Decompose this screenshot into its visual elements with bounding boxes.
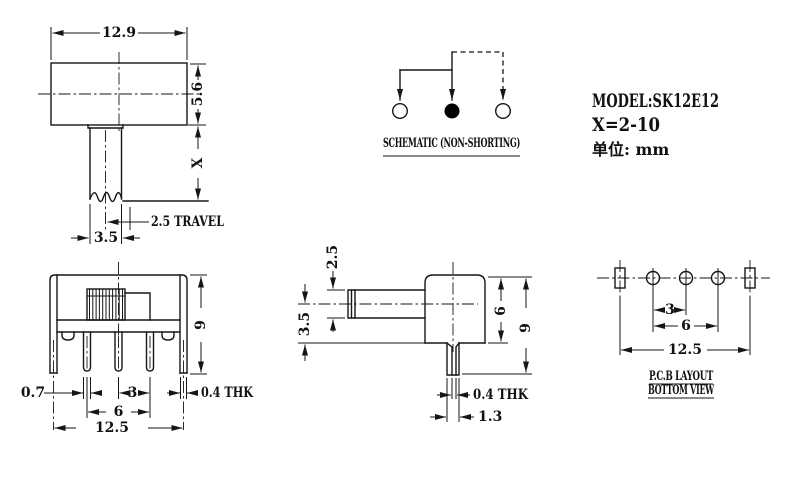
dim-travel-label: 2.5 TRAVEL: [151, 214, 224, 230]
switch-front-view: 9 0.7 3 0.4 THK 6 12.5: [21, 262, 254, 436]
schematic-diagram: SCHEMATIC (NON-SHORTING): [383, 52, 520, 156]
dim-pin-pitch-label: 3: [128, 385, 138, 401]
schematic-caption: SCHEMATIC (NON-SHORTING): [383, 136, 520, 151]
pcb-caption-line1: P.C.B LAYOUT: [649, 369, 714, 384]
dim-pin-thk-label: 0.4 THK: [473, 387, 529, 403]
dim-stem-length-label: X: [190, 157, 206, 168]
pcb-dim-total-label: 12.5: [668, 342, 702, 358]
dim-total-height-label: 9: [518, 323, 534, 333]
actuator-front-view: 12.9 5.6 X 2.5 TRAVEL 3.5: [38, 25, 224, 246]
dim-cap-height-label: 5.6: [190, 82, 206, 106]
body-side-outline: [425, 275, 485, 343]
dim-height-label: 9: [193, 320, 209, 330]
contact-terminal-3: [496, 104, 511, 119]
dim-stem-thk-label: 2.5: [325, 245, 341, 269]
contact-common-filled: [445, 104, 460, 119]
dim-pin-span-label: 6: [114, 404, 124, 420]
dim-stem-width-label: 3.5: [94, 230, 118, 246]
switch-side-view: 2.5 3.5 6 9 0.4 THK 1.3: [297, 245, 534, 425]
dim-total-width-label: 12.5: [95, 420, 129, 436]
pcb-dim-pitch-label: 3: [665, 302, 675, 318]
locating-peg-left: [62, 332, 74, 340]
dim-stem-center-label: 3.5: [297, 312, 313, 336]
unit-label: 单位: mm: [592, 140, 669, 159]
dim-pin-width-side-label: 1.3: [478, 409, 502, 425]
dim-width-label: 12.9: [102, 25, 136, 41]
contact-terminal-1: [393, 104, 408, 119]
pcb-caption-line2: BOTTOM VIEW: [648, 383, 715, 398]
locating-peg-right: [162, 332, 174, 340]
dim-pin-width-label: 0.7: [21, 385, 45, 401]
model-number: MODEL:SK12E12: [592, 90, 719, 112]
technical-drawing: 12.9 5.6 X 2.5 TRAVEL 3.5 SCHEMATIC (NON…: [0, 0, 800, 480]
pcb-dim-span-label: 6: [681, 318, 691, 334]
pcb-layout-view: 3 6 12.5 P.C.B LAYOUT BOTTOM VIEW: [597, 260, 770, 398]
knob-knurl-hatch: [90, 289, 123, 320]
dim-bracket-thk-label: 0.4 THK: [201, 385, 254, 401]
slider-slot: [125, 293, 150, 320]
drawing-sheet: 12.9 5.6 X 2.5 TRAVEL 3.5 SCHEMATIC (NON…: [0, 0, 800, 480]
x-range: X=2-10: [592, 114, 660, 136]
dim-body-height-label: 6: [493, 306, 509, 316]
title-block: MODEL:SK12E12 X=2-10 单位: mm: [592, 90, 719, 159]
